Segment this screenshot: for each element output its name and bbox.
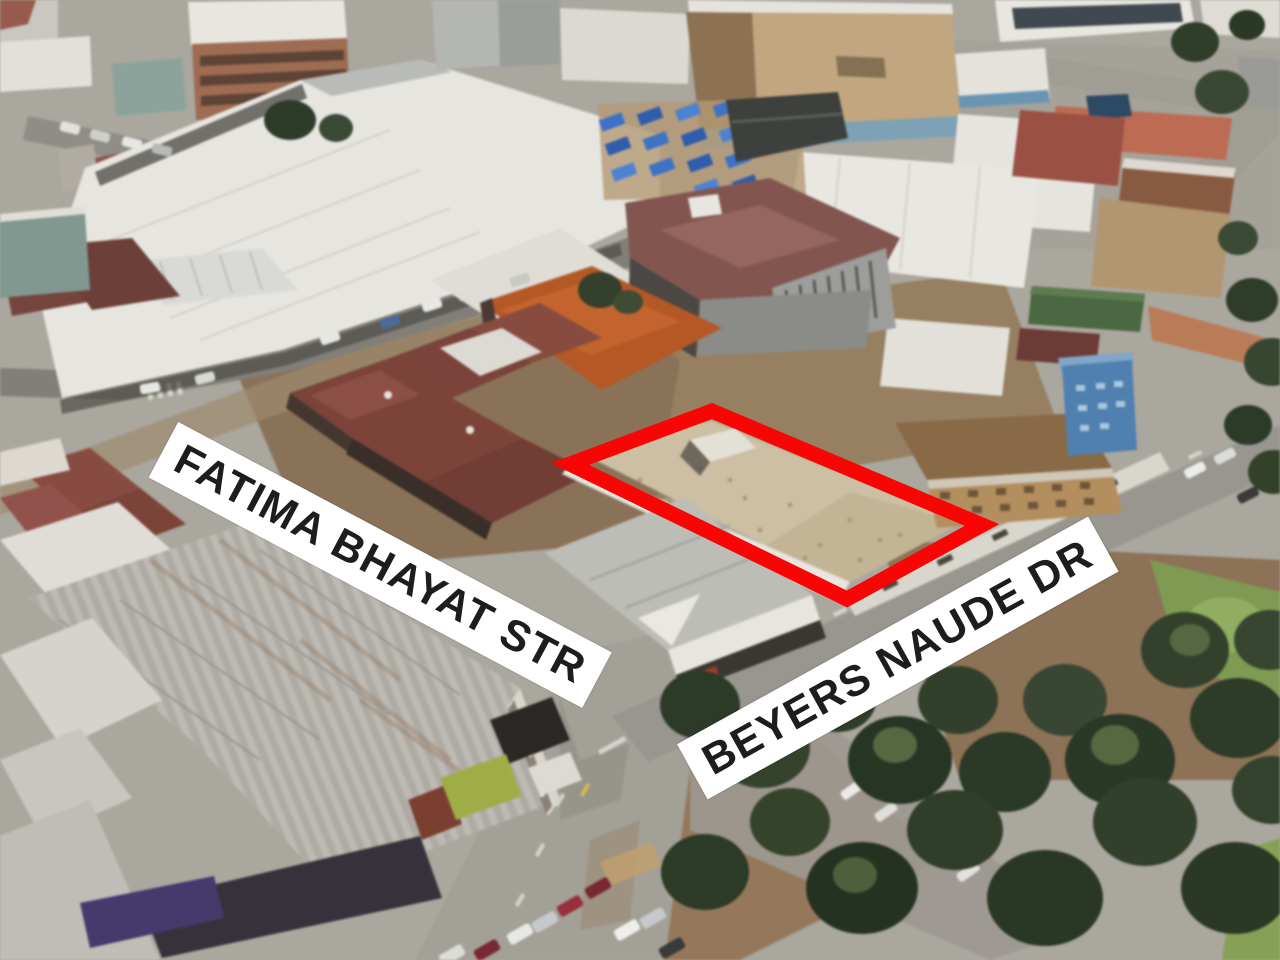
aerial-map-image: FATIMA BHAYAT STR BEYERS NAUDE DR bbox=[0, 0, 1280, 960]
